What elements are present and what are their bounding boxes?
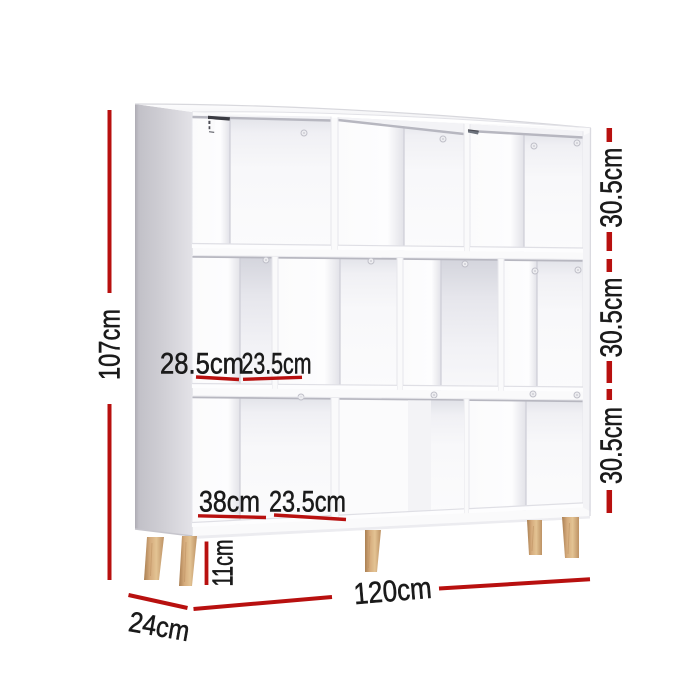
svg-text:38cm: 38cm [199, 486, 260, 519]
svg-text:30.5cm: 30.5cm [594, 407, 629, 484]
svg-text:23.5cm: 23.5cm [242, 348, 312, 381]
svg-text:107cm: 107cm [93, 309, 126, 380]
svg-text:11cm: 11cm [208, 540, 240, 587]
svg-text:24cm: 24cm [126, 606, 192, 648]
svg-text:120cm: 120cm [352, 572, 432, 611]
svg-text:30.5cm: 30.5cm [594, 148, 629, 228]
svg-text:30.5cm: 30.5cm [594, 278, 629, 358]
svg-text:28.5cm: 28.5cm [160, 348, 244, 381]
svg-text:23.5cm: 23.5cm [269, 486, 346, 519]
